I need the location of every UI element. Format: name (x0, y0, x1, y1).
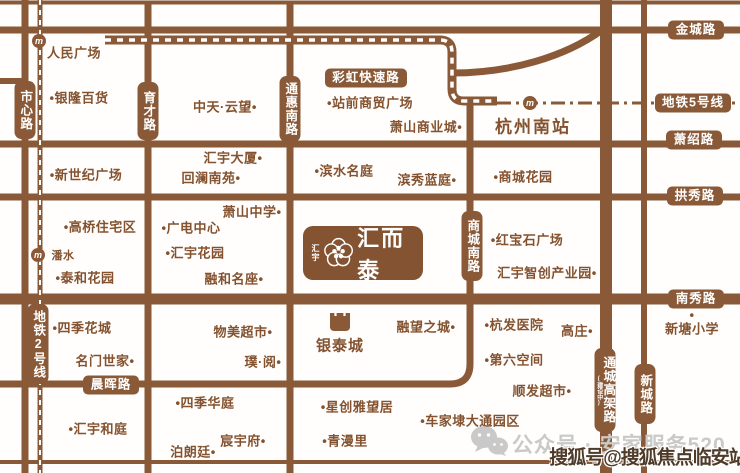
landmark-label: 杭州南站 (495, 113, 571, 138)
metro-station-icon: m (523, 96, 537, 110)
landmark-label: 融和名座• (204, 269, 263, 288)
landmark-label: •杭发医院 (484, 315, 543, 334)
landmark-label: 物美超市• (213, 322, 272, 341)
road-badge: 地铁5号线 (655, 94, 731, 113)
road-ramp-curve (452, 30, 602, 73)
metro-station-icon: m (31, 248, 45, 262)
road-badge: 新城路 (635, 364, 656, 424)
landmark-label: 汇宇大厦• (203, 148, 262, 167)
road-badge: 商城南路 (462, 211, 483, 281)
road-badge: 金城路 (668, 21, 724, 40)
road-badge: 通惠南路 (280, 76, 301, 142)
landmark-label: •车家埭大通园区 (420, 411, 520, 430)
landmark-label: •滨水名庭 (314, 161, 373, 180)
landmark-label: •四季华庭 (175, 393, 234, 412)
landmark-label: •商城花园 (493, 167, 552, 186)
landmark-label: 宸宇府• (220, 431, 266, 450)
badge-subtext: (建设中) (596, 376, 602, 406)
landmark-label: •汇宇和庭 (68, 419, 127, 438)
landmark-label: •青漫里 (322, 431, 368, 450)
landmark-label: 人民广场 (47, 43, 101, 62)
road-caihong-expressway-dashes (105, 40, 497, 101)
landmark-label: 泊朗廷• (170, 442, 216, 461)
landmark-label: •高桥住宅区 (64, 217, 137, 236)
road-badge: 地铁2号线 (28, 304, 49, 384)
landmark-label: 汇宇智创产业园• (497, 263, 597, 282)
landmark-label: 璞·阅• (245, 352, 282, 371)
logo-side-text: 汇宇 (310, 244, 321, 262)
landmark-label: •新世纪广场 (50, 165, 123, 184)
landmark-label: 银泰城 (316, 335, 364, 356)
landmark-label: •星创雅望居 (321, 397, 394, 416)
logo-project-name: 汇而泰 (357, 221, 423, 285)
landmark-label: •四季花城 (52, 318, 111, 337)
landmark-label: 回澜南苑• (181, 168, 240, 187)
landmark-label: •第六空间 (484, 350, 543, 369)
landmark-label: 萧山商业城• (390, 117, 463, 136)
road-badge: 晨晖路 (83, 376, 139, 395)
landmark-label: •站前商贸广场 (327, 93, 413, 112)
landmark-label: •红宝石广场 (491, 230, 564, 249)
location-map: 公众号 · 安家服务520 金城路彩虹快速路地铁5号线萧绍路拱秀路南秀路晨晖路市… (0, 0, 740, 473)
watermark-sohu-account: 搜狐号@搜狐焦点临安站 (549, 443, 740, 470)
shopping-bag-icon (327, 305, 353, 333)
road-badge: 南秀路 (668, 290, 724, 309)
road-badge: 萧绍路 (666, 131, 722, 150)
road-badge: 通城高架路(建设中) (595, 348, 616, 432)
landmark-label: 滨秀蓝庭• (397, 170, 456, 189)
road-caihong-expressway (105, 40, 497, 101)
landmark-label: 名门世家• (75, 351, 134, 370)
road-badge: 彩虹快速路 (325, 69, 407, 88)
landmark-label: •汇宇花园 (165, 243, 224, 262)
landmark-label: 高庄• (561, 321, 593, 340)
landmark-label: 萧山中学• (222, 202, 281, 221)
landmark-label: •广电中心 (161, 218, 220, 237)
landmark-label: 新塘小学 (665, 319, 719, 338)
landmark-label: 顺发超市• (512, 381, 571, 400)
road-badge: 市心路 (15, 81, 36, 139)
landmark-label: •银隆百货 (49, 88, 108, 107)
road-badge: 拱秀路 (667, 187, 723, 206)
landmark-label: 融望之城• (396, 317, 455, 336)
landmark-label: •泰和花园 (55, 268, 114, 287)
landmark-label: 中天·云望• (193, 97, 257, 116)
project-logo-plaque: 汇宇 汇而泰 (303, 226, 423, 280)
road-badge: 育才路 (138, 82, 159, 140)
landmark-label: 潘水 (52, 247, 75, 263)
metro-station-icon: m (32, 34, 46, 48)
plum-blossom-icon (323, 235, 354, 271)
